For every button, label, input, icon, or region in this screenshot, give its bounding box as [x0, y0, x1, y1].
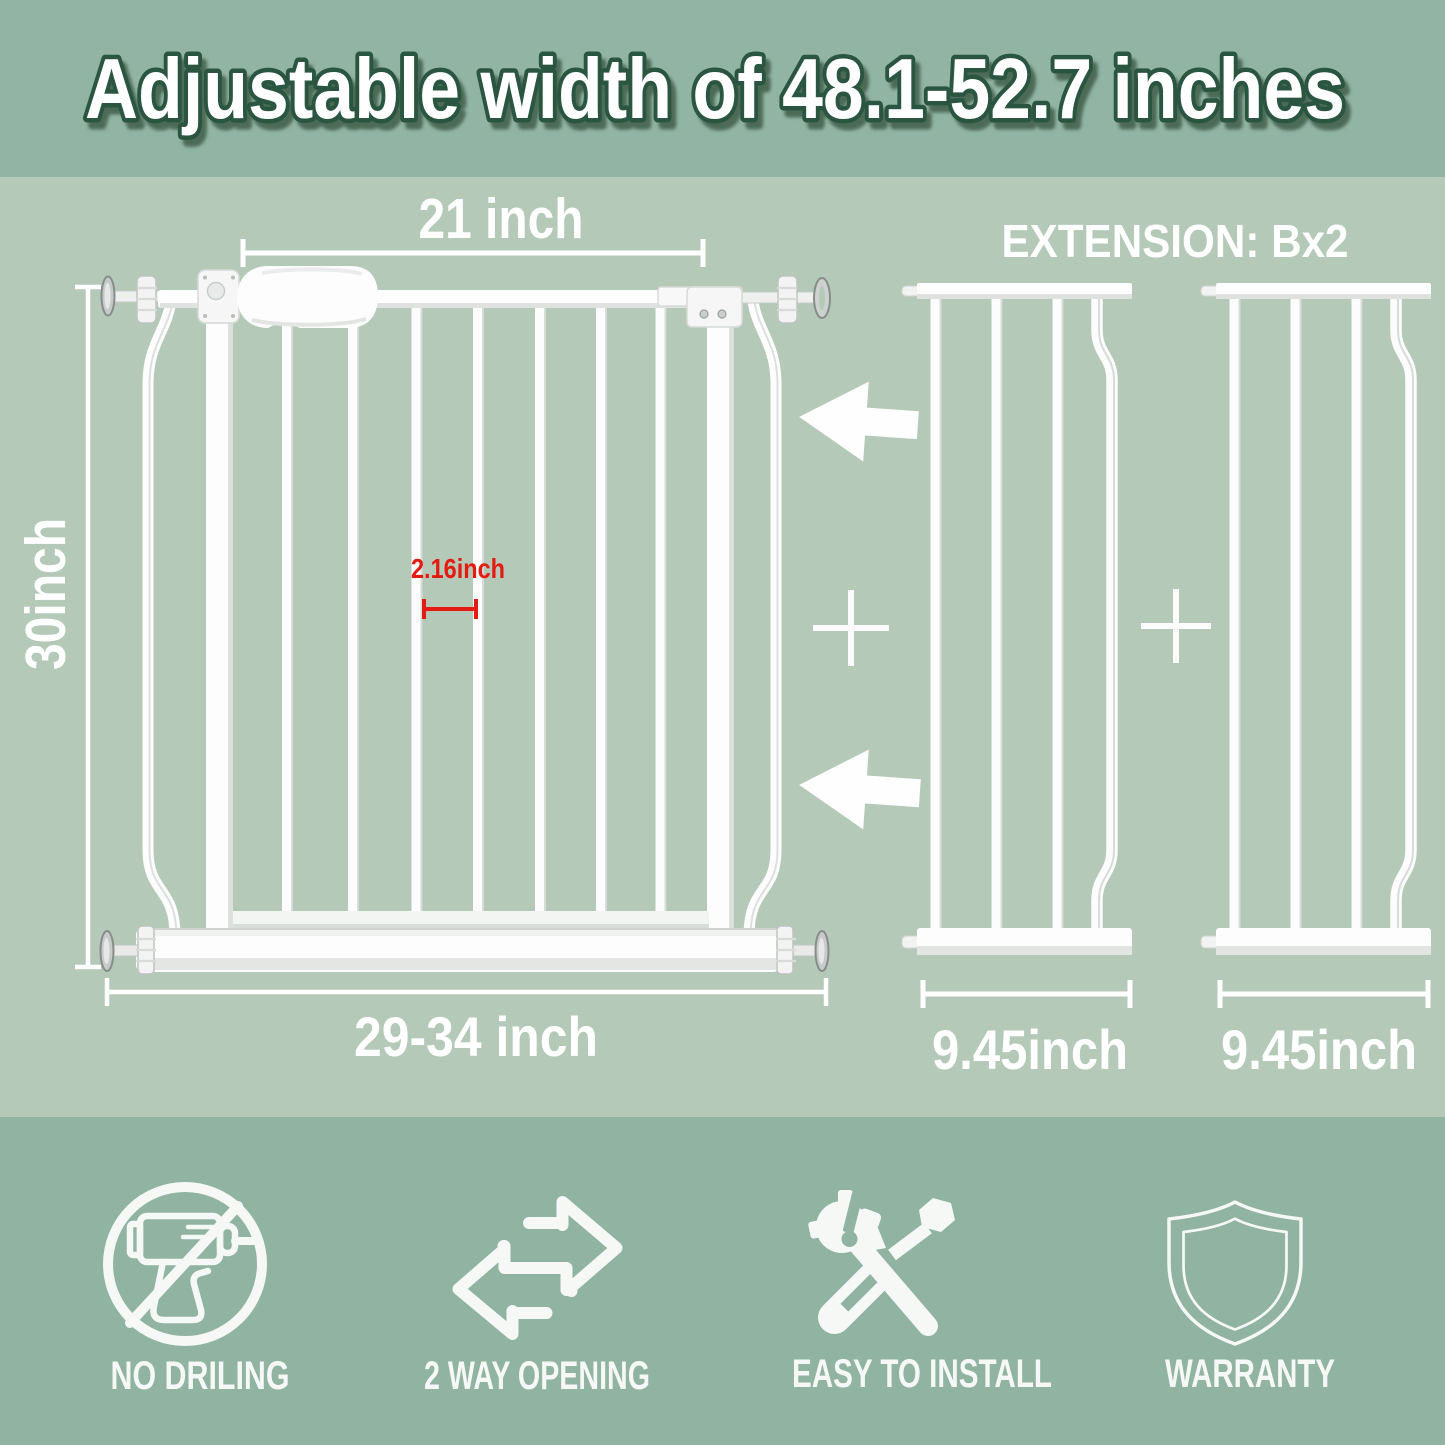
svg-text:EXTENSION: Bx2: EXTENSION: Bx2: [1002, 215, 1349, 267]
svg-text:WARRANTY: WARRANTY: [1165, 1352, 1335, 1396]
svg-text:9.45inch: 9.45inch: [1221, 1018, 1417, 1081]
svg-text:EASY TO INSTALL: EASY TO INSTALL: [792, 1352, 1052, 1396]
svg-text:NO DRILING: NO DRILING: [111, 1354, 290, 1398]
svg-text:9.45inch: 9.45inch: [932, 1018, 1128, 1081]
svg-text:21 inch: 21 inch: [419, 187, 584, 251]
svg-text:Adjustable width of 48.1-52.7: Adjustable width of 48.1-52.7 inches: [85, 42, 1345, 137]
svg-text:2 WAY OPENING: 2 WAY OPENING: [424, 1354, 650, 1398]
svg-text:30inch: 30inch: [14, 518, 78, 670]
svg-text:29-34 inch: 29-34 inch: [354, 1005, 598, 1068]
svg-text:2.16inch: 2.16inch: [411, 553, 505, 584]
